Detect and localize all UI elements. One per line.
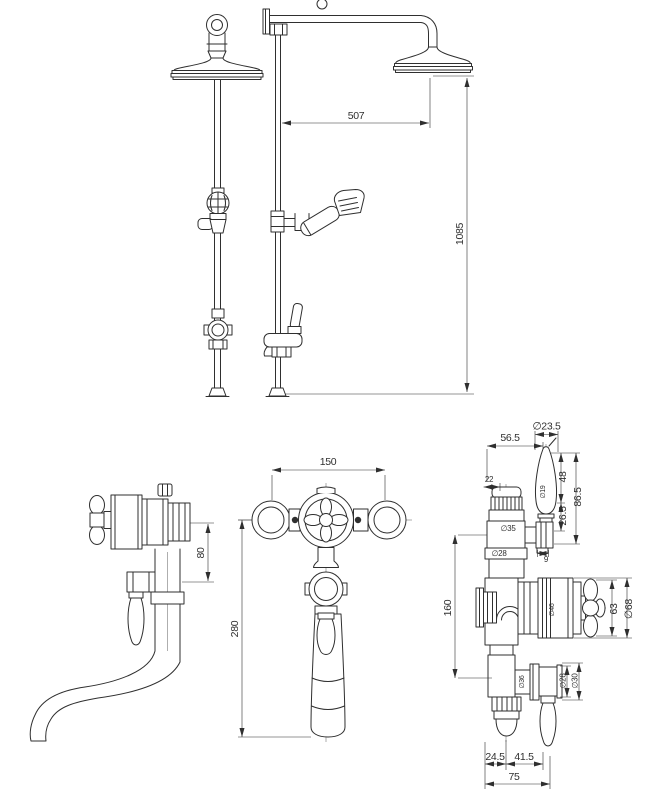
- dim-base-offset-b: 41.5: [514, 751, 534, 763]
- fixing-dot-left: [292, 517, 298, 523]
- fixing-dot-right: [355, 517, 361, 523]
- dim-stem-flat: 9: [544, 555, 549, 564]
- dim-outlet-boss-dia: ∅30: [571, 673, 580, 689]
- dim-lever-offset: 56.5: [500, 432, 520, 444]
- dim-body-height: 160: [442, 599, 454, 616]
- dim-cap-flat: 22: [485, 475, 494, 484]
- technical-drawing-page: 507 1085 80 150: [0, 0, 651, 801]
- dim-lower-body-dia: ∅36: [519, 675, 526, 688]
- dim-handle-span: 63: [608, 603, 620, 615]
- dim-cartridge-dia: ∅68: [623, 599, 635, 619]
- dim-riser-height: 1085: [454, 222, 466, 245]
- dim-lever-lower-len: 26.5: [557, 506, 569, 526]
- shower-column-front-view: [263, 0, 473, 397]
- thermostatic-valve-front-view: ∅35 ∅28 ∅19 ∅46 ∅36 56.5 ∅23.5 22 48 26.…: [442, 421, 635, 790]
- shower-column-side-view: [171, 15, 263, 397]
- dim-arm-projection: 507: [348, 110, 365, 122]
- dim-lever-shaft-dia: ∅19: [540, 485, 547, 498]
- bath-filler-front-view: 150 280: [229, 456, 412, 742]
- dim-overall-height: 280: [229, 620, 241, 637]
- bath-filler-side-view: 80: [30, 484, 214, 741]
- dim-lever-upper-len: 48: [557, 471, 569, 483]
- dim-lever-total: 86.5: [572, 487, 584, 507]
- dim-valve-centres: 150: [320, 456, 337, 468]
- dim-outlet-drop: 80: [195, 547, 207, 559]
- dim-base-offset-a: 24.5: [485, 751, 505, 763]
- dim-collar-dia: ∅46: [549, 603, 556, 616]
- dim-outlet-neck-dia: ∅28: [559, 673, 568, 689]
- dim-base-width: 75: [508, 771, 520, 783]
- dim-upper-body-dia: ∅35: [501, 524, 517, 533]
- dim-upper-neck-dia: ∅28: [492, 549, 508, 558]
- dim-lever-knob-dia: ∅23.5: [532, 421, 561, 433]
- technical-drawing: 507 1085 80 150: [0, 0, 651, 801]
- wall-screw-icon: [317, 0, 327, 9]
